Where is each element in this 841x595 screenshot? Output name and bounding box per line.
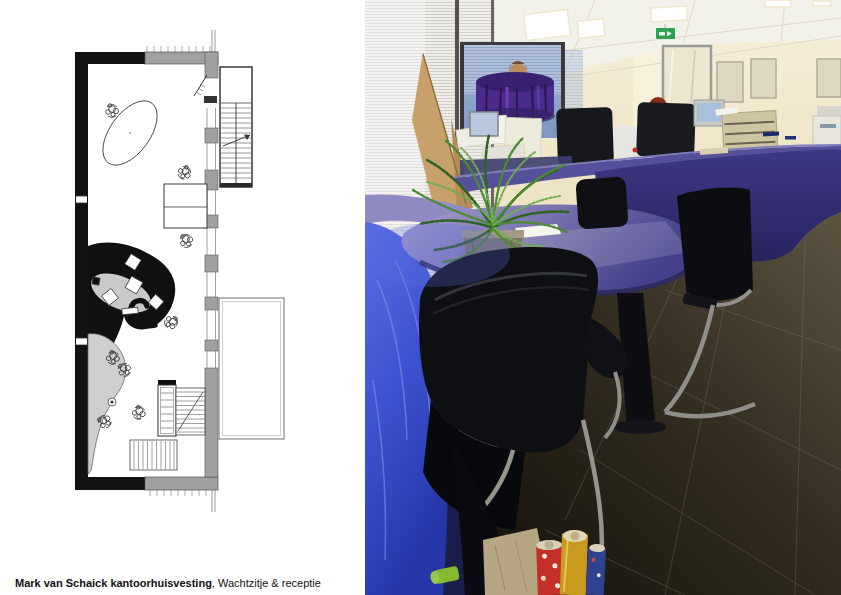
caption-subtitle: , Wachtzitje & receptie (212, 577, 321, 589)
office-photo (365, 0, 841, 595)
cabinet (164, 184, 207, 228)
office-photo-panel (365, 0, 841, 595)
floor-plan-drawing (0, 0, 360, 540)
blue-gift-roll (586, 544, 607, 595)
portfolio-page: Mark van Schaick kantoorhuisvesting, Wac… (0, 0, 841, 595)
caption-project-title: Mark van Schaick kantoorhuisvesting (15, 577, 212, 589)
red-gift-roll (536, 540, 564, 595)
counter-underlight (365, 223, 510, 287)
floor-plan-panel (0, 0, 360, 540)
balcony (219, 298, 284, 439)
exterior-staircase (220, 67, 252, 187)
chair-center (575, 176, 628, 229)
caption: Mark van Schaick kantoorhuisvesting, Wac… (15, 577, 321, 589)
gold-gift-roll (560, 530, 588, 595)
